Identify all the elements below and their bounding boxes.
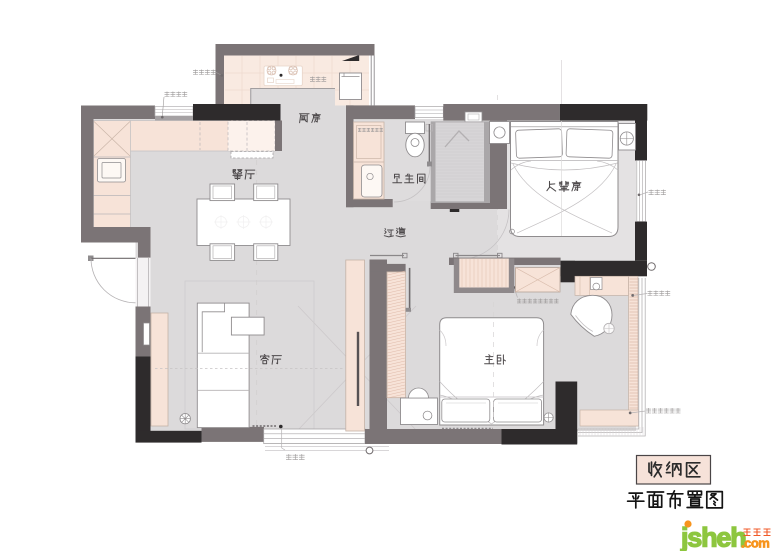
svg-text:.com: .com [741, 536, 769, 551]
